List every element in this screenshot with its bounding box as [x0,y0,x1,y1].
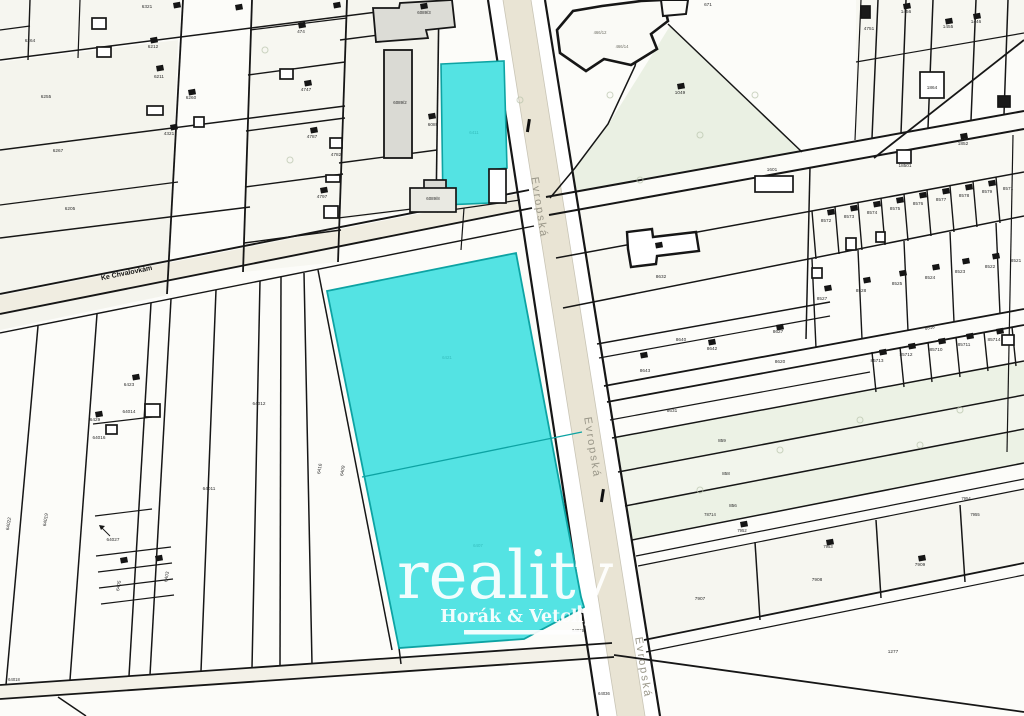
parcel-label: 671 [704,2,712,7]
parcel-label: 18501 [898,163,911,168]
parcel-label: 6429 [90,417,101,422]
parcel-label: 1864 [927,85,938,90]
building-outline [194,117,204,127]
building-icon [850,205,858,212]
building-outline [97,47,111,57]
parcel-label: 1049 [675,90,686,95]
parcel-label: 6264 [25,38,36,43]
parcel-label: 8643 [640,368,651,373]
parcel-label: 6423 [124,382,135,387]
tree-icon [607,92,613,98]
parcel-label: 8631 [667,408,678,413]
parcel-label: 466/14 [616,44,629,49]
building-outline [861,6,870,18]
building-outline [846,238,856,250]
parcel-label: 4751 [864,26,875,31]
building-icon [966,333,974,340]
building-outline [897,150,911,163]
parcel-label: 8521 [1011,258,1022,263]
building-icon [170,124,178,131]
building-outline [812,268,822,278]
building-icon [827,209,835,216]
parcel-label: 1455 [943,24,954,29]
parcel-label: 6260 [186,95,197,100]
parcel-label: 8620 [775,359,786,364]
parcel-label: 6255 [41,94,52,99]
parcel-label: 4787 [307,134,318,139]
parcel-label: 4782 [331,152,342,157]
watermark-underline [464,630,582,635]
parcel-label: 85710 [929,347,942,352]
parcel-label: 8523 [955,269,966,274]
parcel-label: 64022 [5,517,12,531]
parcel-label: 859 [718,438,726,443]
building-icon [420,3,428,10]
watermark-subtitle: Horák & Vetchý [440,607,594,627]
parcel-label: 64014 [122,409,135,414]
building-icon [655,242,663,249]
parcel-label: 4747 [301,87,312,92]
parcel-label: 7953 [823,544,833,549]
building-outline [106,425,117,434]
parcel-label: 64011 [203,486,216,491]
building-icon [320,187,328,194]
parcel-label: 64012 [252,401,265,406]
building-icon [304,80,312,87]
building-icon [879,349,887,356]
parcel-label: 85712 [899,352,912,357]
building-icon [899,270,907,277]
parcel-label: 7952 [737,528,747,533]
building-icon [919,192,927,199]
parcel-label: 8573 [844,214,855,219]
parcel-label: 8522 [985,264,996,269]
parcel-label: 1456 [901,9,912,14]
building-outline [330,138,342,148]
building-outline [147,106,163,115]
parcel-label: 6267 [53,148,64,153]
parcel-label: 6089/2 [393,100,407,105]
parcel-label: 474 [297,29,305,34]
building-outline [145,404,160,417]
parcel-label: 8572 [821,218,832,223]
building-icon [150,37,158,44]
building-icon [996,328,1004,335]
parcel-label: 1446 [971,19,982,24]
parcel-label: 8640 [676,337,687,342]
parcel-label: 8528 [856,288,867,293]
building-icon [740,521,748,528]
building-icon [965,184,973,191]
parcel-label: 6405 [115,580,122,592]
parcel-label: 64019 [42,513,49,527]
cadastral-map-image: 6321626462126211625562606267432162054744… [0,0,1024,716]
parcel-label: 1277 [888,649,899,654]
parcel-label: 64027 [106,537,119,542]
parcel-label: 7908 [812,577,823,582]
parcel-label: 8574 [867,210,878,215]
building-icon [310,127,318,134]
parcel-label: 8576 [913,201,924,206]
parcel-label: 6089/3 [417,10,431,15]
parcel-label: 8627 [773,329,784,334]
parcel-label: 6411 [469,130,479,135]
building-icon [235,4,243,11]
building-icon [962,258,970,265]
building-icon [173,2,181,9]
parcel-label: 8518 [924,324,935,331]
building-icon [960,133,968,140]
parcel-label: 8525 [892,281,903,286]
parcel-label: 8632 [656,274,667,279]
parcel-label: 85713 [870,358,883,363]
parcel-label: 4321 [164,131,175,136]
parcel-label: 6212 [148,44,159,49]
building-icon [640,352,648,359]
building-icon [896,197,904,204]
parcel-label: 8642 [707,346,718,351]
building-icon [298,22,306,29]
parcel-label: 6089/8 [426,196,440,201]
building-icon [908,343,916,350]
building-icon [708,339,716,346]
parcel-label: 6421 [442,355,452,360]
parcel-label: 8578 [959,193,970,198]
parcel-label: 85714 [987,337,1000,342]
building-outline [324,206,338,218]
parcel-label: 466/12 [594,30,607,35]
building-outline [755,176,793,192]
building-icon [428,113,436,120]
parcel-label: 6409 [339,465,346,477]
parcel-label: 6205 [65,206,76,211]
parcel-label: 856 [729,503,737,508]
building-icon [863,277,871,284]
building-icon [988,180,996,187]
building-outline [280,69,293,79]
parcel-label: 8524 [925,275,936,280]
building-small-top [661,0,688,16]
parcel-label: 7909 [915,562,926,567]
building-icon [155,555,163,562]
building-icon [132,374,140,381]
building-icon [120,557,128,564]
building-icon [992,253,1000,260]
building-icon [824,285,832,292]
parcel-label: 64036 [598,691,610,696]
building-icon [156,65,164,72]
parcel-label: 858 [722,471,730,476]
parcel-label: 1852 [958,141,969,146]
building-icon [333,2,341,9]
parcel-label: 64018 [8,677,20,682]
cadastral-map-screenshot: 6321626462126211625562606267432162054744… [0,0,1024,716]
parcel-label: 78714 [704,512,716,517]
parcel-label: 6211 [154,74,164,79]
building-icon [677,83,685,90]
parcel-label: 7955 [970,512,980,517]
building-outline [326,175,340,182]
parcel-label: 6089 [428,122,439,127]
parcel-label: 6321 [142,4,153,9]
parcel-label: 8577 [936,197,947,202]
building-outline [92,18,106,29]
parcel-label: 8527 [817,296,828,301]
building-icon [918,555,926,562]
building-icon [942,188,950,195]
watermark-brand: reality [397,537,614,614]
building-icon [938,338,946,345]
building-outline [998,96,1010,107]
building-outline [489,169,506,203]
parcel-label: 64016 [92,435,105,440]
building-outline [1002,335,1014,345]
building-outline [876,232,885,242]
tree-icon [752,92,758,98]
parcel-label: 4797 [317,194,328,199]
parcel-label: 7907 [695,596,706,601]
parcel-label: 8579 [982,189,993,194]
building-icon [932,264,940,271]
parcel-label: 1601 [767,167,778,172]
parcel-label: 6403 [163,571,170,583]
parcel-label: 85711 [958,342,971,347]
parcel-label: 8575 [890,206,901,211]
parcel-label: 6416 [316,463,323,475]
parcel-label: 8571 [1003,186,1014,191]
building-icon [873,201,881,208]
parcel-label: 7954 [961,496,971,501]
